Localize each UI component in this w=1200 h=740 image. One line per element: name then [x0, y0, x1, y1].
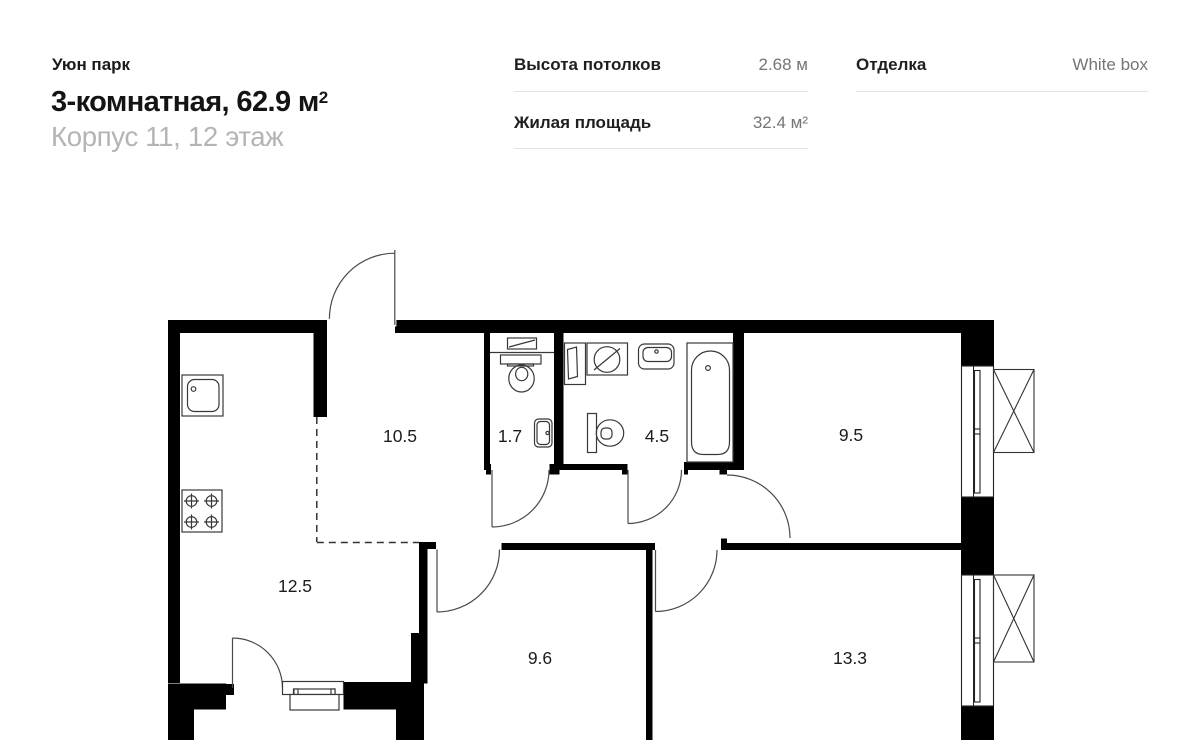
svg-text:12.5: 12.5 [278, 576, 312, 596]
svg-text:9.5: 9.5 [839, 425, 863, 445]
svg-text:13.3: 13.3 [833, 648, 867, 668]
svg-text:4.5: 4.5 [645, 426, 669, 446]
svg-text:9.6: 9.6 [528, 648, 552, 668]
svg-text:10.5: 10.5 [383, 426, 417, 446]
svg-text:1.7: 1.7 [498, 426, 522, 446]
